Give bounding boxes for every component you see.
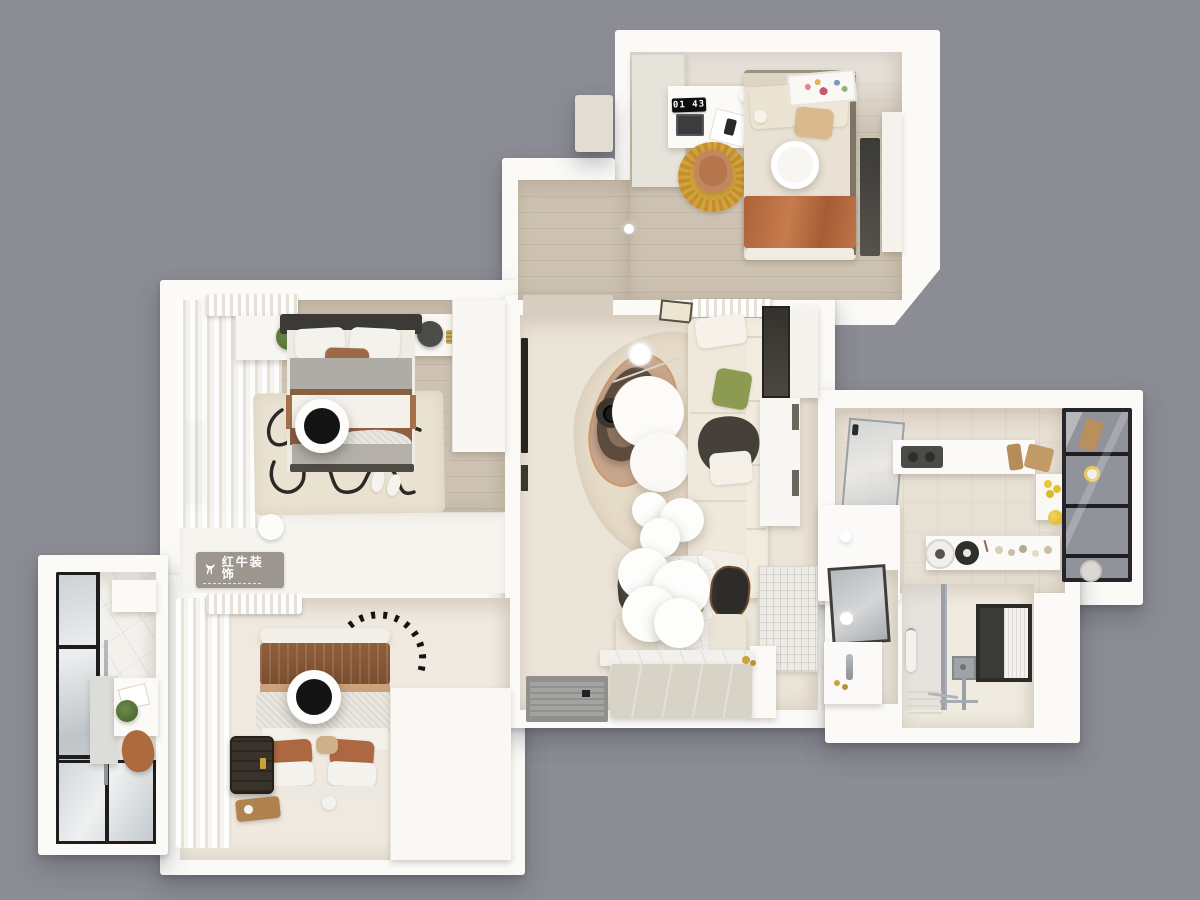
cup xyxy=(244,805,254,815)
jar xyxy=(1032,550,1039,557)
glass-fridge-cabinet xyxy=(1062,408,1132,582)
floor-drain xyxy=(908,688,942,714)
cabinet-handle xyxy=(792,404,799,430)
cabinet-handle xyxy=(792,470,799,496)
watermark-text: 红牛装饰 xyxy=(222,556,277,580)
lemon xyxy=(1053,485,1061,493)
ceiling-fan-lamp xyxy=(287,670,341,724)
window-mullion xyxy=(56,645,100,649)
kettle xyxy=(925,539,955,569)
burner xyxy=(908,452,918,462)
mixer-knob xyxy=(960,664,966,670)
pipe xyxy=(940,700,978,703)
ac-outdoor-platform xyxy=(575,95,613,152)
shoe-cabinet xyxy=(610,664,752,718)
gray-sheet xyxy=(290,358,412,390)
phone xyxy=(723,118,737,136)
humidifier xyxy=(258,514,284,540)
luggage-tag xyxy=(260,758,266,769)
apartment-floorplan-3d-render: 01 43 xyxy=(0,0,1200,900)
mirror-panel xyxy=(882,112,902,252)
curtains xyxy=(176,598,232,848)
hallway-ceiling-spot xyxy=(624,224,634,234)
hallway-top-floor xyxy=(518,180,630,300)
brand-watermark: 红牛装饰 xyxy=(196,552,284,588)
pot-lid xyxy=(963,549,971,557)
bull-icon xyxy=(203,561,218,576)
pipe xyxy=(962,676,966,710)
cloud-pendant-lamp xyxy=(654,598,704,648)
lemon xyxy=(1046,490,1054,498)
wall-art xyxy=(787,69,858,107)
potted-plant xyxy=(116,700,138,722)
brass-decor xyxy=(742,656,750,664)
yellow-flowers xyxy=(1048,510,1063,525)
white-pillow xyxy=(327,761,376,787)
burner xyxy=(925,452,935,462)
floor-cushion xyxy=(322,796,336,810)
gold-soap-bottle xyxy=(834,680,840,686)
coffee-table-small xyxy=(630,432,690,492)
chair-seat xyxy=(697,154,729,188)
sphere-lamp xyxy=(840,612,853,625)
bed-frame-foot xyxy=(290,464,414,472)
arc-floor-lamp xyxy=(628,342,652,366)
side-cabinet xyxy=(760,398,800,526)
bed-end xyxy=(746,248,854,260)
leaning-art xyxy=(659,299,693,323)
blinded-window xyxy=(976,604,1032,682)
lemon xyxy=(1044,480,1052,488)
terracotta-throw xyxy=(744,196,856,248)
window xyxy=(860,138,880,256)
entry-doormat xyxy=(526,676,608,722)
ceiling-spot xyxy=(840,531,851,542)
air-conditioner xyxy=(206,594,302,614)
window-panel xyxy=(790,306,818,398)
jar xyxy=(1019,545,1027,553)
ceiling-lamp xyxy=(771,141,819,189)
double-bed xyxy=(280,314,422,474)
laptop xyxy=(676,114,704,136)
air-conditioner xyxy=(206,294,298,316)
suitcase xyxy=(230,736,274,794)
ball-decor xyxy=(754,110,767,123)
pot xyxy=(955,541,979,565)
green-pillow xyxy=(711,367,753,411)
gold-soap-bottle xyxy=(842,684,848,690)
kettle-lid xyxy=(935,549,945,559)
floor-tray xyxy=(235,796,281,822)
wall-tv xyxy=(521,338,528,453)
jar xyxy=(995,546,1003,554)
window xyxy=(762,306,790,398)
quilt-roll xyxy=(260,628,390,644)
glass-reflection xyxy=(1066,412,1128,578)
door-key xyxy=(582,690,590,697)
wardrobe-block xyxy=(390,688,511,860)
sofa-pillow xyxy=(709,450,754,486)
window-blind xyxy=(1004,608,1028,678)
media-device xyxy=(521,465,528,491)
ceiling-fan-lamp xyxy=(295,399,349,453)
vanity-sink xyxy=(824,642,882,704)
balcony-cabinet xyxy=(112,580,156,612)
led-clock: 01 43 xyxy=(672,97,706,112)
jar xyxy=(1044,546,1052,554)
cooktop xyxy=(901,446,943,468)
towel xyxy=(906,628,916,672)
wardrobe xyxy=(452,300,505,452)
brass-decor xyxy=(750,660,756,666)
tan-mini-pillow xyxy=(316,736,338,754)
watermark-subtext xyxy=(203,583,261,584)
jar xyxy=(1008,549,1015,556)
leaning-mirror xyxy=(827,564,890,646)
door-handle xyxy=(852,424,859,435)
faucet xyxy=(846,654,853,680)
tan-cushion xyxy=(794,106,835,140)
